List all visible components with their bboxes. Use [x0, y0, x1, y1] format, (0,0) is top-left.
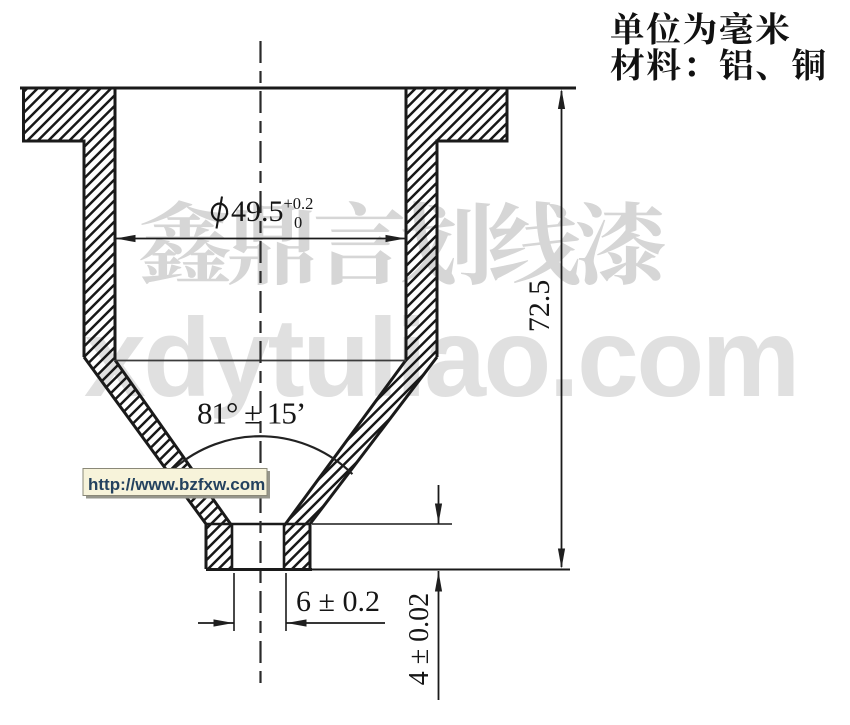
svg-text:xdytuliao.com: xdytuliao.com: [84, 296, 798, 420]
svg-text:4 ± 0.02: 4 ± 0.02: [404, 593, 435, 685]
svg-text:http://www.bzfxw.com: http://www.bzfxw.com: [88, 475, 265, 494]
svg-text:72.5: 72.5: [523, 280, 556, 333]
svg-text:0: 0: [294, 213, 302, 232]
svg-text:6 ± 0.2: 6 ± 0.2: [296, 585, 380, 618]
svg-text:81° ± 15’: 81° ± 15’: [197, 396, 305, 431]
